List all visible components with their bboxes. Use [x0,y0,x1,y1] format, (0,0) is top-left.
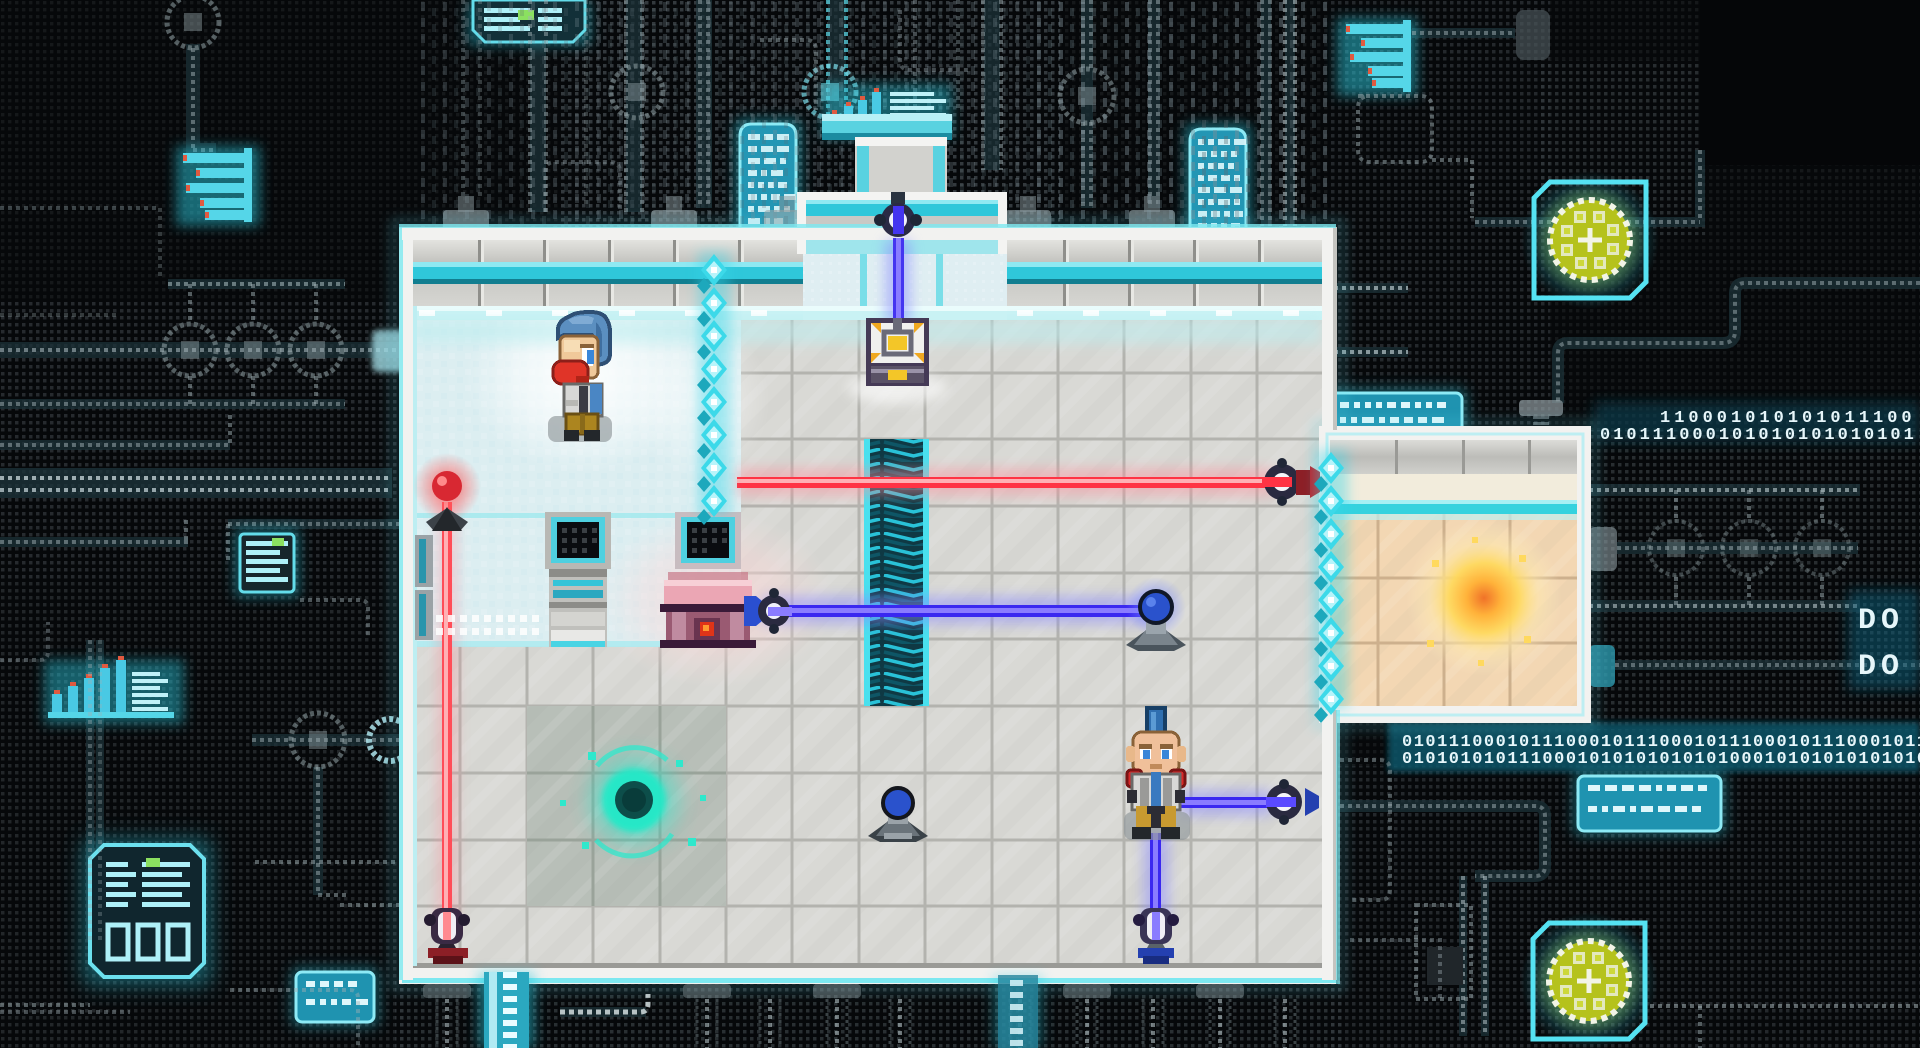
svg-text:DO: DO [1858,604,1904,638]
svg-text:010111000101010101010101: 010111000101010101010101 [1600,426,1917,445]
svg-text:DO: DO [1858,650,1904,684]
svg-text:010101010111000101010101010100: 0101010101110001010101010101000101010101… [1402,750,1920,769]
